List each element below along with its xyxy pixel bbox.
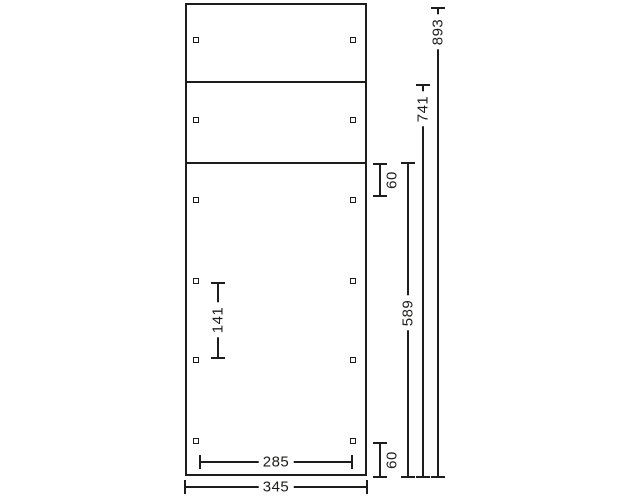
dim-end-tick	[211, 357, 225, 359]
dim-end-tick	[373, 163, 387, 165]
hole-marker	[193, 278, 199, 284]
hole-marker	[193, 357, 199, 363]
dim-end-tick	[373, 442, 387, 444]
dim-label: 285	[259, 454, 294, 471]
dim-end-tick	[184, 480, 186, 494]
hole-marker	[193, 438, 199, 444]
dim-end-tick	[401, 476, 415, 478]
hole-marker	[193, 37, 199, 43]
hole-marker	[350, 117, 356, 123]
dim-end-tick	[401, 162, 415, 164]
hole-marker	[350, 37, 356, 43]
hole-marker	[350, 357, 356, 363]
dim-line	[379, 443, 381, 477]
dim-label: 589	[400, 296, 417, 331]
panel-outline	[185, 3, 367, 476]
technical-drawing-canvas: 8937415896060141285345	[0, 0, 625, 500]
dim-line	[379, 164, 381, 196]
dim-end-tick	[351, 455, 353, 469]
dim-label: 893	[430, 15, 447, 50]
dim-line	[422, 85, 424, 477]
dim-end-tick	[431, 476, 445, 478]
dim-end-tick	[416, 84, 430, 86]
dim-end-tick	[373, 476, 387, 478]
dim-label: 741	[415, 92, 432, 127]
hole-marker	[350, 278, 356, 284]
dim-label: 60	[385, 451, 400, 469]
hole-marker	[350, 438, 356, 444]
dim-end-tick	[416, 476, 430, 478]
hole-marker	[193, 117, 199, 123]
dim-end-tick	[431, 7, 445, 9]
dim-end-tick	[373, 195, 387, 197]
hole-marker	[350, 197, 356, 203]
dim-end-tick	[211, 282, 225, 284]
dim-end-tick	[199, 455, 201, 469]
board-divider	[185, 162, 367, 164]
dim-label: 60	[385, 171, 400, 189]
hole-marker	[193, 197, 199, 203]
dim-label: 141	[210, 303, 227, 338]
board-divider	[185, 81, 367, 83]
dim-label: 345	[259, 479, 294, 496]
dim-line	[437, 8, 439, 477]
dim-end-tick	[366, 480, 368, 494]
